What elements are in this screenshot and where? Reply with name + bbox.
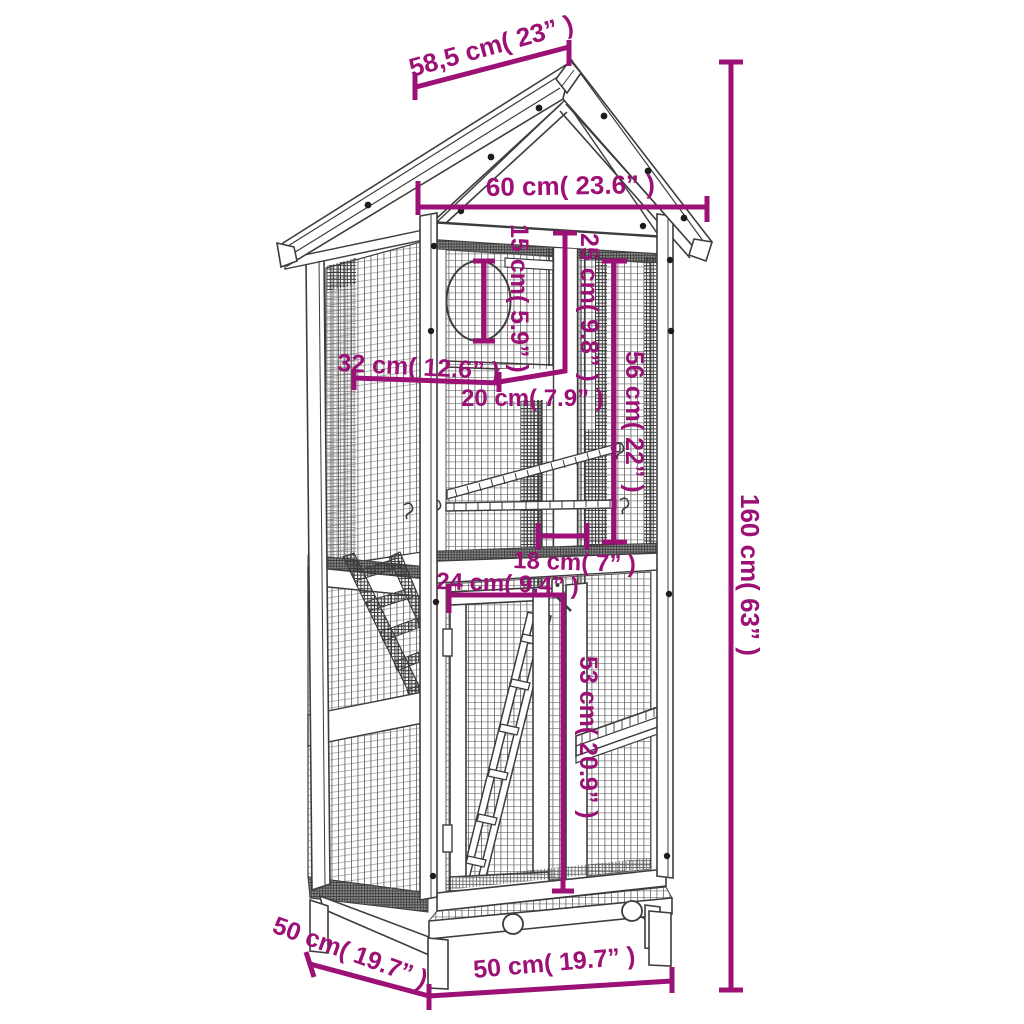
svg-text:160 cm( 63” ): 160 cm( 63” ) (735, 494, 765, 656)
svg-text:20 cm( 7.9” ): 20 cm( 7.9” ) (461, 385, 604, 412)
svg-text:56 cm( 22” ): 56 cm( 22” ) (620, 351, 648, 493)
svg-text:60 cm( 23.6” ): 60 cm( 23.6” ) (486, 169, 656, 202)
svg-text:53 cm( 20.9” ): 53 cm( 20.9” ) (574, 656, 602, 819)
svg-text:15 cm( 5.9” ): 15 cm( 5.9” ) (505, 224, 533, 373)
svg-text:24 cm( 9.4” ): 24 cm( 9.4” ) (436, 568, 580, 600)
svg-text:25 cm( 9.8” ): 25 cm( 9.8” ) (575, 233, 603, 382)
